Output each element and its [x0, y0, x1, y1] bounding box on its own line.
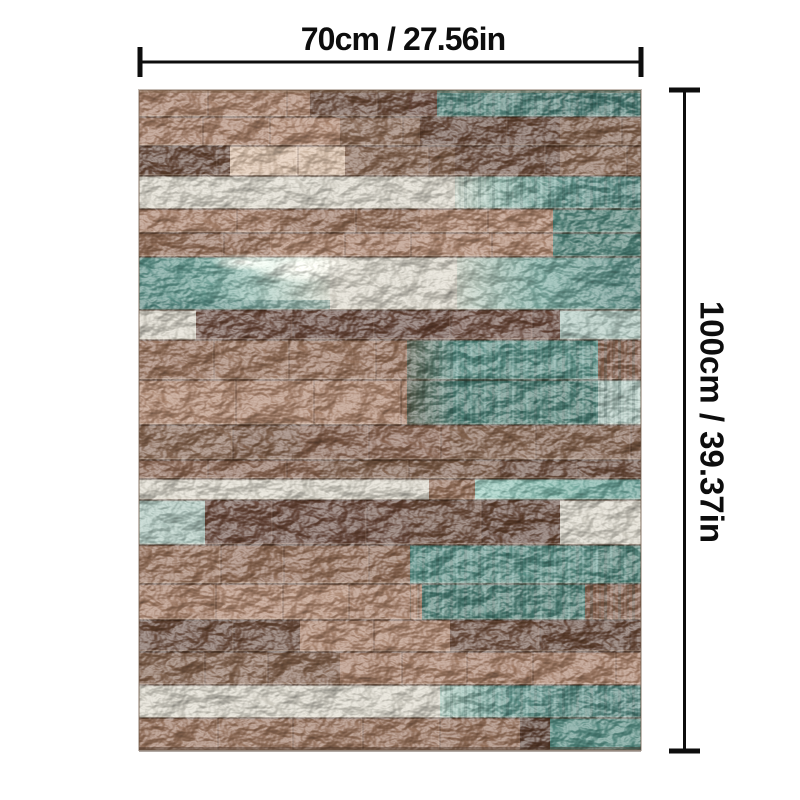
svg-text:100cm / 39.37in: 100cm / 39.37in — [694, 301, 731, 543]
svg-text:70cm / 27.56in: 70cm / 27.56in — [301, 21, 505, 57]
